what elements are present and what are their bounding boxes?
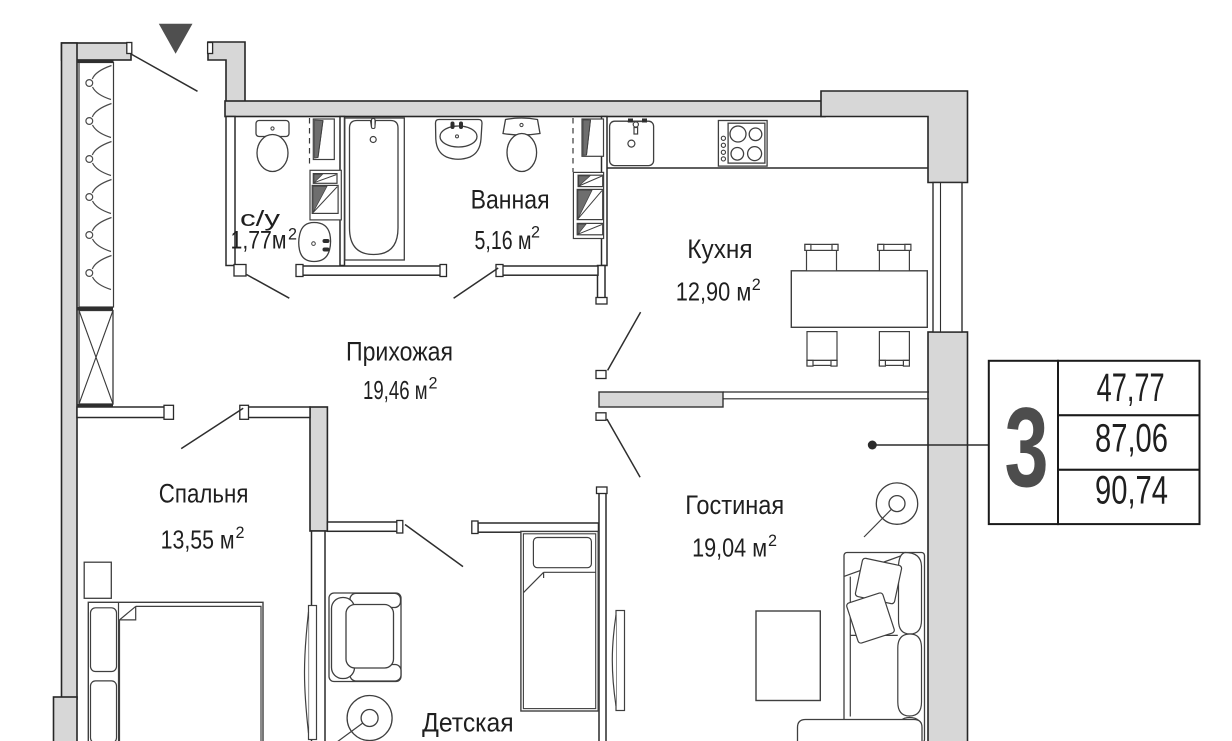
svg-text:2: 2 [288, 226, 297, 244]
svg-text:5,16 м: 5,16 м [475, 225, 532, 255]
svg-text:1,77м: 1,77м [231, 227, 287, 255]
svg-text:2: 2 [768, 532, 777, 550]
svg-text:Кухня: Кухня [687, 234, 752, 264]
svg-text:13,55 м: 13,55 м [161, 525, 235, 555]
svg-text:Прихожая: Прихожая [346, 337, 453, 367]
svg-text:19,04 м: 19,04 м [692, 533, 767, 563]
svg-text:2: 2 [429, 375, 438, 393]
svg-text:90,74: 90,74 [1095, 469, 1168, 513]
svg-text:47,77: 47,77 [1097, 366, 1165, 410]
svg-text:19,46 м: 19,46 м [363, 375, 428, 405]
svg-text:Детская: Детская [422, 707, 514, 737]
svg-text:2: 2 [236, 524, 245, 542]
svg-text:Спальня: Спальня [159, 479, 249, 509]
svg-text:87,06: 87,06 [1095, 417, 1168, 461]
svg-text:2: 2 [752, 276, 761, 294]
svg-text:Гостиная: Гостиная [685, 490, 784, 520]
svg-text:2: 2 [531, 224, 540, 242]
svg-text:Ванная: Ванная [471, 185, 550, 215]
svg-text:3: 3 [1005, 384, 1049, 510]
svg-text:12,90 м: 12,90 м [676, 277, 752, 307]
